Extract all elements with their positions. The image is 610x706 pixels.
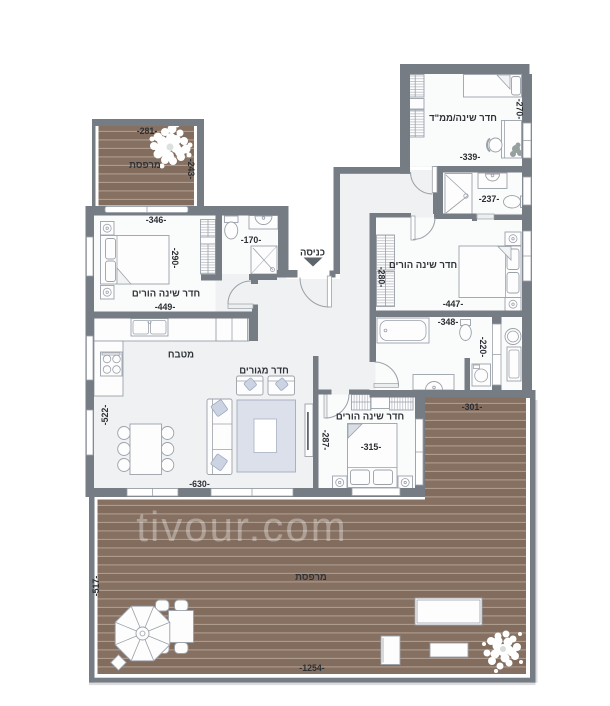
svg-text:tivour.com: tivour.com bbox=[136, 503, 347, 550]
svg-text:-220-: -220- bbox=[478, 337, 488, 358]
svg-text:-281-: -281- bbox=[137, 126, 158, 136]
svg-text:חדר שינה הורים: חדר שינה הורים bbox=[132, 289, 200, 300]
svg-text:-287-: -287- bbox=[321, 430, 331, 451]
svg-text:-301-: -301- bbox=[462, 402, 483, 412]
svg-text:-522-: -522- bbox=[100, 405, 110, 426]
svg-text:חדר שינה הורים: חדר שינה הורים bbox=[389, 260, 457, 271]
svg-text:-270-: -270- bbox=[515, 99, 525, 120]
svg-text:-243-: -243- bbox=[186, 159, 196, 180]
svg-text:-290-: -290- bbox=[170, 248, 180, 269]
svg-text:-237-: -237- bbox=[479, 194, 500, 204]
svg-text:-630-: -630- bbox=[189, 479, 210, 489]
svg-text:חדר שינה/ממ"ד: חדר שינה/ממ"ד bbox=[429, 113, 497, 124]
svg-text:מטבח: מטבח bbox=[168, 350, 194, 361]
svg-text:-170-: -170- bbox=[241, 235, 262, 245]
svg-text:מרפסת: מרפסת bbox=[295, 572, 327, 583]
svg-text:חדר מגורים: חדר מגורים bbox=[239, 366, 289, 377]
svg-text:-447-: -447- bbox=[443, 299, 464, 309]
svg-text:-280-: -280- bbox=[377, 267, 387, 288]
svg-text:-346-: -346- bbox=[146, 215, 167, 225]
svg-text:-449-: -449- bbox=[155, 302, 176, 312]
svg-text:כניסה: כניסה bbox=[300, 248, 325, 259]
svg-text:חדר שינה הורים: חדר שינה הורים bbox=[336, 412, 404, 423]
svg-text:מרפסת: מרפסת bbox=[129, 160, 161, 171]
svg-text:-348-: -348- bbox=[438, 317, 459, 327]
svg-text:-315-: -315- bbox=[361, 442, 382, 452]
svg-text:-517-: -517- bbox=[91, 576, 101, 597]
svg-text:-1254-: -1254- bbox=[299, 663, 324, 673]
svg-text:-339-: -339- bbox=[460, 152, 481, 162]
